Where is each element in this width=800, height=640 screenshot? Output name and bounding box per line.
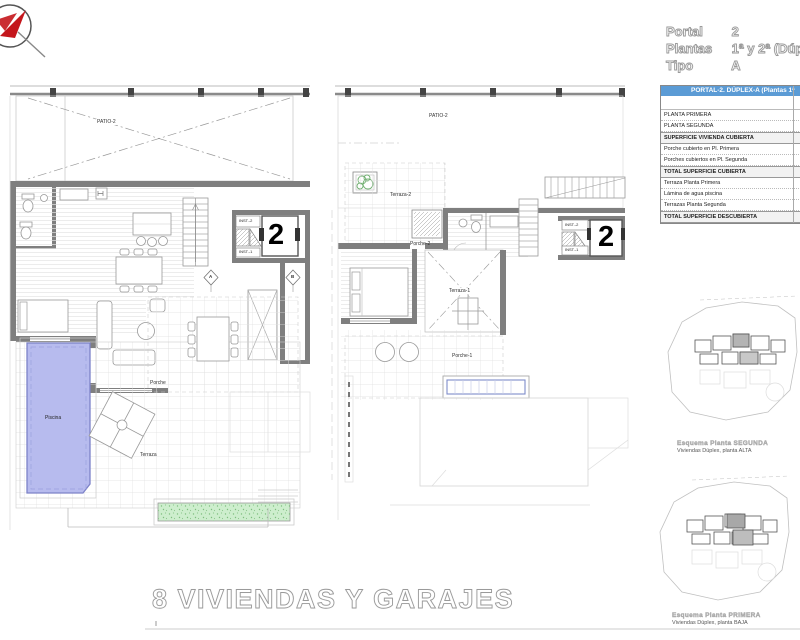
header-portal-row: Portal 2 (666, 24, 739, 39)
surface-table-title: PORTAL-2. DÚPLEX-A (Plantas 1ª (661, 86, 800, 96)
portal-label: Portal (666, 24, 728, 39)
piscina-label: Piscina (45, 415, 61, 421)
site-plan-drawing-lower (660, 476, 790, 600)
table-row: SUPERFICIE VIVIENDA CUBIERTA (661, 132, 800, 144)
site-plan-drawing (668, 296, 798, 420)
table-row: Porches cubiertos en Pl. Segunda (661, 155, 800, 166)
plantas-label: Plantas (666, 41, 728, 56)
table-column-divider (793, 86, 794, 223)
siteplan-lower-caption-title: Esquema Planta PRIMERA (672, 612, 761, 619)
patio-label-left: PATIO-2 (96, 119, 117, 125)
terraza2-label: Terraza-2 (390, 192, 411, 198)
plantas-value: 1ª y 2ª (Dúp (732, 41, 800, 56)
tipo-label: Tipo (666, 58, 728, 73)
siteplan-lower-caption-sub: Viviendas Dúplex, planta BAJA (672, 620, 748, 626)
surface-table-spacer (661, 96, 800, 110)
inst2-label-right: INST.-2 (565, 222, 578, 227)
table-row: TOTAL SUPERFICIE CUBIERTA (661, 166, 800, 178)
siteplan-upper-caption-sub: Viviendas Dúplex, planta ALTA (677, 448, 752, 454)
portal-number-right: 2 (598, 223, 614, 251)
terraza1-label: Terraza-1 (448, 288, 471, 294)
porche2-label: Porche-2 (410, 241, 430, 247)
inst2-label-left: INST.-2 (239, 218, 252, 223)
table-row: Porche cubierto en Pl. Primera (661, 144, 800, 155)
inst1-label-right: INST.-1 (565, 247, 578, 252)
header-plantas-row: Plantas 1ª y 2ª (Dúp (666, 41, 800, 56)
terraza-label-left: Terraza (140, 452, 157, 458)
porche-label-left: Porche (150, 380, 166, 386)
table-row: PLANTA PRIMERA (661, 110, 800, 121)
table-row: TOTAL SUPERFICIE DESCUBIERTA (661, 211, 800, 223)
company-logo (0, 5, 45, 57)
table-row: Terrazas Planta Segunda (661, 200, 800, 211)
marker-b: B (291, 274, 294, 279)
tipo-value: A (731, 58, 740, 73)
portal-number-left: 2 (268, 221, 284, 249)
floorplan-left (10, 86, 310, 530)
surface-table: PORTAL-2. DÚPLEX-A (Plantas 1ª PLANTA PR… (660, 85, 800, 224)
portal-value: 2 (732, 24, 739, 39)
table-row: Terraza Planta Primera (661, 178, 800, 189)
porche1-label: Porche-1 (452, 353, 472, 359)
inst1-label-left: INST.-1 (239, 249, 252, 254)
project-title: 8 VIVIENDAS Y GARAJES (152, 584, 514, 615)
floorplan-right (332, 86, 628, 520)
header-tipo-row: Tipo A (666, 58, 741, 73)
siteplan-upper-caption-title: Esquema Planta SEGUNDA (677, 440, 768, 447)
table-row: PLANTA SEGUNDA (661, 121, 800, 132)
patio-label-right: PATIO-2 (428, 113, 449, 119)
drawing-sheet: Portal 2 Plantas 1ª y 2ª (Dúp Tipo A POR… (0, 0, 800, 640)
marker-a: A (209, 274, 212, 279)
table-row: Lámina de agua piscina (661, 189, 800, 200)
